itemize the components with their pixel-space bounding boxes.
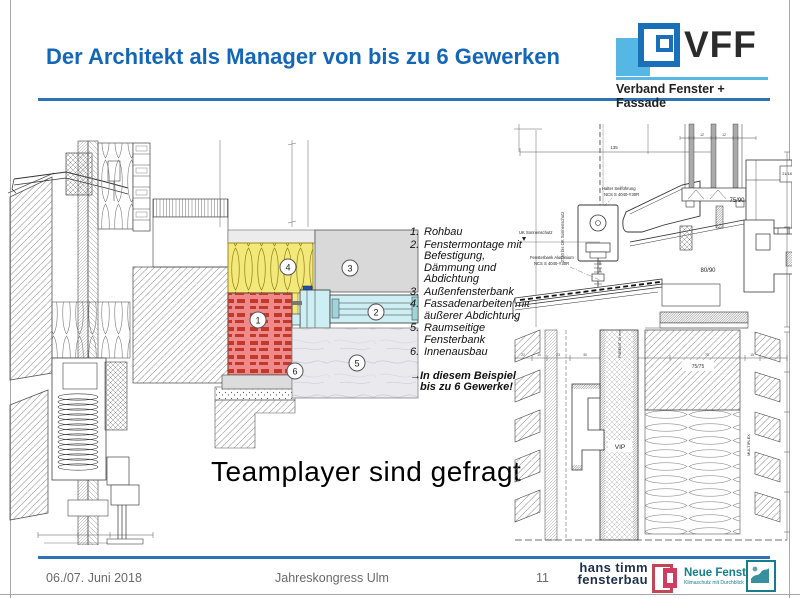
slide-border-bottom: [0, 594, 800, 595]
callout-3: 3: [347, 264, 352, 274]
dim-row-15: 15: [537, 353, 541, 357]
callout-6: 6: [292, 367, 297, 377]
dim-75-75: 75/75: [692, 364, 705, 370]
vff-inner-square-icon: [656, 35, 673, 52]
dim-row-15b: 15: [750, 353, 754, 357]
dim-12b: 12: [722, 133, 726, 137]
hanstimm-square-filled-icon: [663, 568, 677, 588]
hanstimm-line2: fensterbau: [578, 572, 648, 587]
dim-row-30: 30: [583, 353, 587, 357]
label-uk-sonnenschutz: UK Sonnenschutz: [519, 230, 553, 235]
page-title: Der Architekt als Manager von bis zu 6 G…: [46, 44, 626, 70]
label-fensterbank-2: NCS S 4040-Y30R: [534, 261, 569, 266]
label-vip: VIP: [615, 444, 625, 451]
label-halter-1: Halter Seilführung: [602, 186, 636, 191]
neuefenster-emblem-icon: [746, 560, 776, 592]
footer-divider: [38, 556, 770, 559]
callout-5: 5: [354, 359, 359, 369]
vff-divider: [616, 77, 768, 80]
dim-12a: 12: [700, 133, 704, 137]
callout-2: 2: [373, 308, 378, 318]
vff-acronym: VFF: [684, 24, 757, 66]
tagline: Teamplayer sind gefragt: [211, 456, 521, 488]
label-fensterbank-1: Fensterbank Aluminium: [530, 255, 574, 260]
label-halter-2: NCS S 4040-Y30R: [604, 192, 639, 197]
presentation-slide: Der Architekt als Manager von bis zu 6 G…: [0, 0, 800, 598]
arrow-icon: →: [410, 371, 420, 394]
label-purenit: PURENIT 30 mm: [618, 330, 622, 358]
right-section-drawing: 135 2730 bis OK Sonnenschutz Halter Seil…: [512, 122, 792, 544]
neuefenster-logo-subtitle: Klimaschutz mit Durchblick: [684, 580, 744, 586]
dim-75-90: 75/90: [729, 198, 745, 204]
page-number: 11: [536, 571, 549, 585]
conclusion-line1: In diesem Beispiel: [420, 370, 516, 382]
hanstimm-logo: hans timm fensterbau: [570, 562, 648, 586]
vff-subtitle: Verband Fenster + Fassade: [616, 82, 778, 110]
callout-1: 1: [255, 316, 260, 326]
level-triangle-icon: [522, 237, 526, 241]
dim-135: 135: [610, 145, 618, 150]
footer-date: 06./07. Juni 2018: [46, 571, 142, 585]
callout-4: 4: [285, 263, 290, 273]
vff-logo: VFF Verband Fenster + Fassade: [600, 16, 778, 100]
conclusion-line2: bis zu 6 Gewerke!: [420, 381, 513, 393]
label-multiplex: MULTIPLEX: [746, 434, 751, 456]
dim-80-90: 80/90: [700, 268, 716, 274]
footer-event: Jahreskongress Ulm: [275, 571, 389, 585]
